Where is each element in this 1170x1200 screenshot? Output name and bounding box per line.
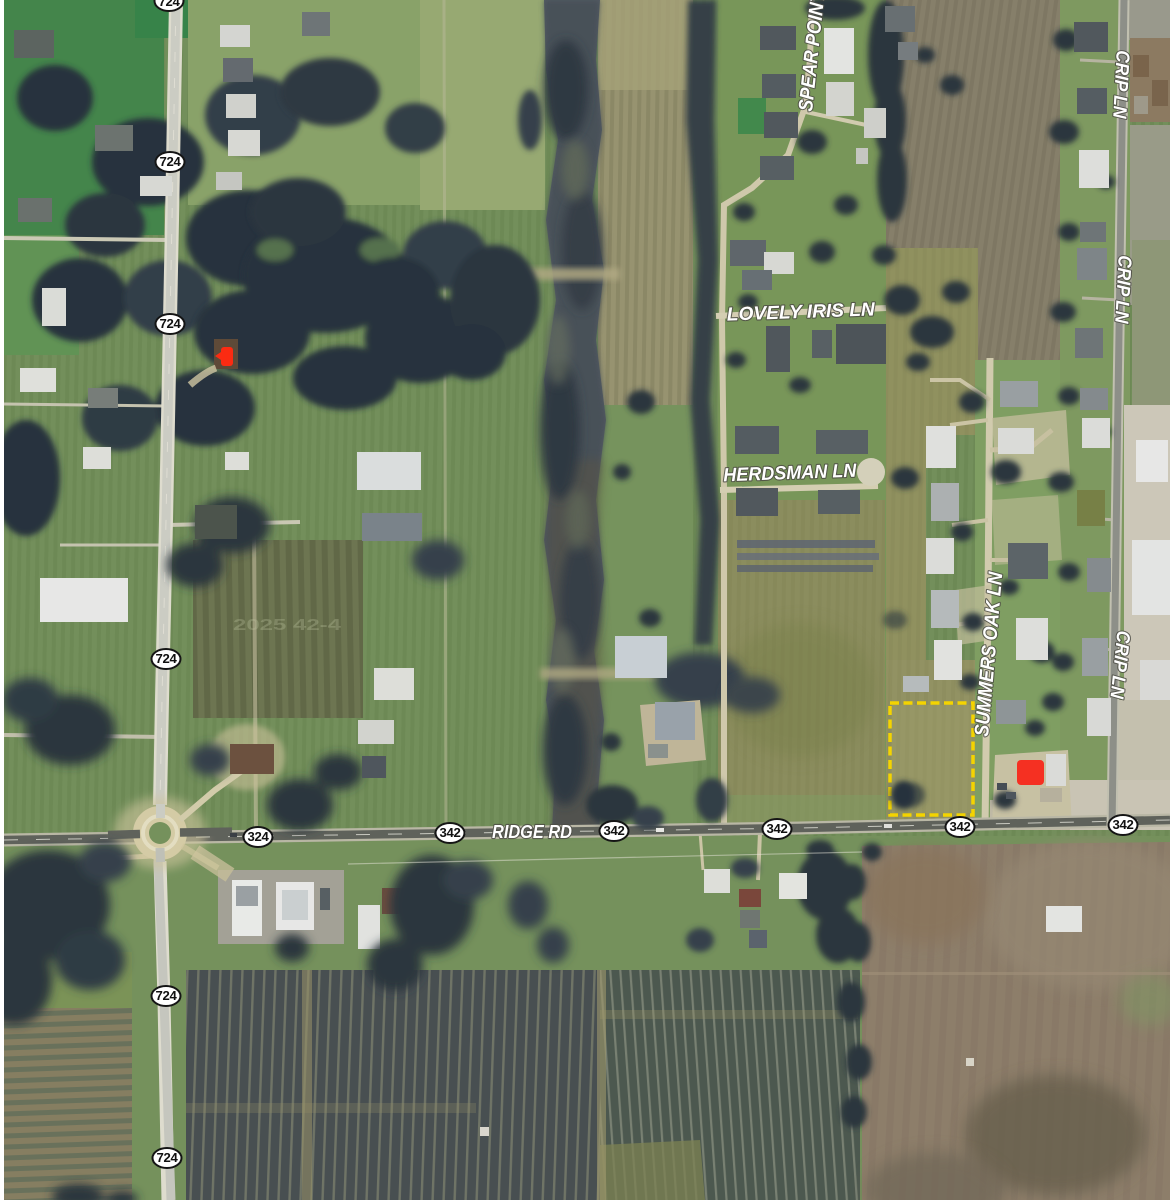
svg-text:CRIP LN: CRIP LN (1110, 255, 1135, 325)
svg-text:724: 724 (160, 155, 181, 169)
svg-text:342: 342 (440, 826, 461, 840)
svg-text:724: 724 (156, 989, 177, 1003)
svg-text:724: 724 (157, 1151, 178, 1165)
svg-text:342: 342 (950, 820, 971, 834)
svg-text:CRIP LN: CRIP LN (1108, 50, 1133, 120)
svg-text:2025 42-4: 2025 42-4 (233, 617, 341, 634)
svg-text:324: 324 (248, 830, 269, 844)
svg-text:342: 342 (1113, 818, 1134, 832)
svg-text:724: 724 (160, 317, 181, 331)
svg-text:RIDGE RD: RIDGE RD (492, 822, 572, 842)
svg-text:724: 724 (156, 652, 177, 666)
svg-text:342: 342 (604, 824, 625, 838)
svg-text:342: 342 (767, 822, 788, 836)
svg-text:724: 724 (159, 0, 180, 9)
